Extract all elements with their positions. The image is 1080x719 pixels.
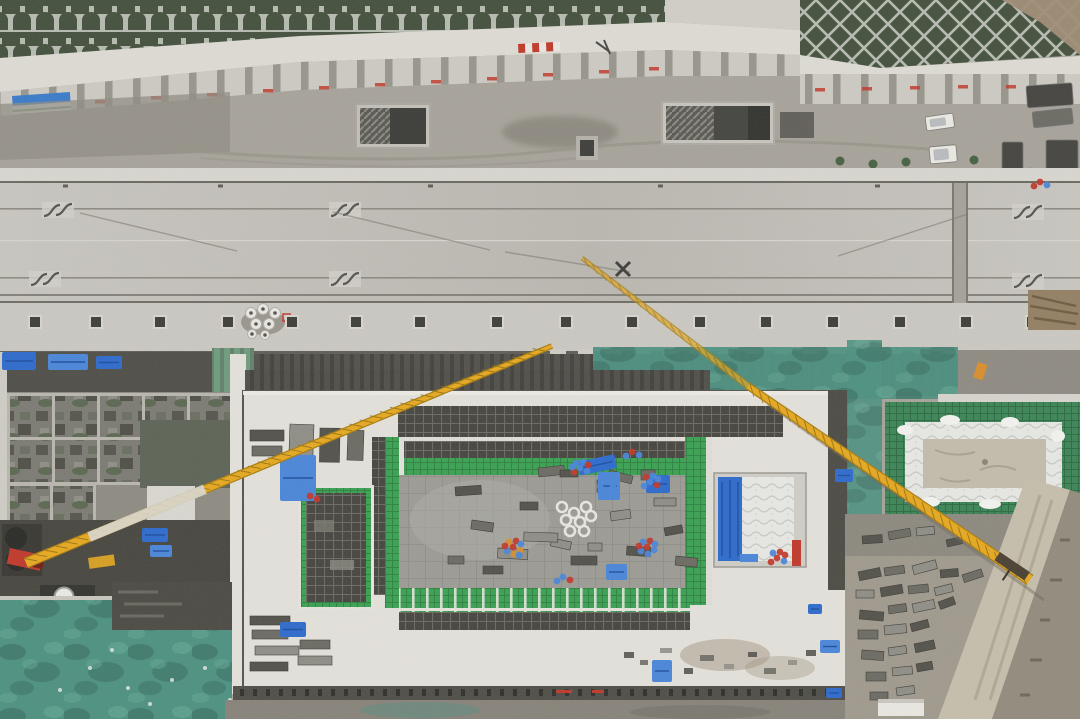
aerial-photo <box>0 0 1080 719</box>
aerial-photo-canvas <box>0 0 1080 719</box>
film-grain <box>0 0 1080 719</box>
